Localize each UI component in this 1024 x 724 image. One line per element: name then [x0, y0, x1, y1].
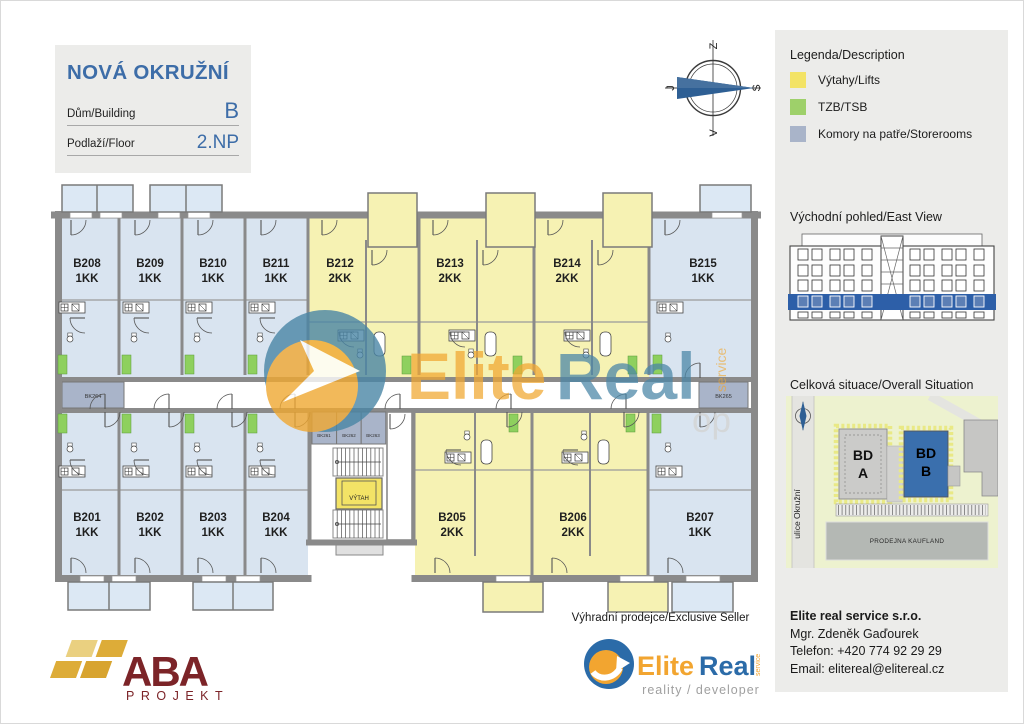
east-view-title: Východní pohled/East View	[790, 210, 942, 224]
unit-b203-code: B203	[199, 512, 227, 524]
storeroom-bk261-label: BK261	[317, 433, 331, 438]
unit-b201-room	[55, 411, 119, 578]
unit-b214-code: B214	[553, 258, 581, 270]
unit-b205-type: 2KK	[440, 527, 464, 539]
storeroom-bk263-label: BK263	[366, 433, 380, 438]
unit-b211-type: 1KK	[264, 273, 288, 285]
aba-sub: PROJEKT	[126, 689, 223, 703]
elitereal-text-service: service	[755, 654, 762, 676]
unit-b213-type: 2KK	[438, 273, 462, 285]
unit-b204-type: 1KK	[264, 527, 288, 539]
unit-b210-code: B210	[199, 258, 227, 270]
situation-map: ulice Okružní BD A BD B PRODEJNA KAUFLAN…	[786, 396, 998, 568]
storeroom-bk262-label: BK262	[342, 433, 356, 438]
elitereal-tagline: reality / developer	[642, 683, 760, 697]
unit-b204-room	[245, 411, 308, 578]
unit-b208-code: B208	[73, 258, 101, 270]
legend-title: Legenda/Description	[790, 48, 905, 62]
lift-label: VÝTAH	[349, 495, 369, 502]
unit-b205-code: B205	[438, 512, 466, 524]
elitereal-text-elite: Elite	[637, 651, 694, 681]
parking-strip	[836, 504, 988, 516]
aba-projekt-logo: ABA PROJEKT	[38, 634, 223, 704]
unit-b209-code: B209	[136, 258, 164, 270]
staircase-upper	[333, 448, 383, 476]
unit-b205-room	[415, 411, 532, 578]
unit-b210-type: 1KK	[201, 273, 225, 285]
building-a-line2: A	[858, 465, 868, 481]
legend-item-lifts: Výtahy/Lifts	[790, 72, 880, 88]
seller-phone: Telefon: +420 774 92 29 29	[790, 643, 1000, 661]
unit-b207-code: B207	[686, 512, 714, 524]
page: { "title_block": { "project": "NOVÁ OKRU…	[0, 0, 1024, 724]
info-panel: Legenda/Description Výtahy/Lifts TZB/TSB…	[775, 30, 1008, 692]
unit-b202-type: 1KK	[138, 527, 162, 539]
lifts-swatch	[790, 72, 806, 88]
unit-b203-room	[182, 411, 245, 578]
seller-email: Email: elitereal@elitereal.cz	[790, 661, 1000, 679]
building-b-line1: BD	[916, 445, 936, 461]
unit-b210-room	[182, 215, 245, 378]
unit-b201-code: B201	[73, 512, 101, 524]
elitereal-logo: Elite Real service reality / developer	[553, 630, 765, 702]
legend-item-storerooms: Komory na patře/Storerooms	[790, 126, 972, 142]
core-vestibule	[387, 412, 412, 540]
unit-b202-code: B202	[136, 512, 164, 524]
unit-b206-code: B206	[559, 512, 587, 524]
unit-b212-code: B212	[326, 258, 354, 270]
building-b-line2: B	[921, 463, 931, 479]
watermark-elite: Elite	[407, 339, 546, 413]
unit-b215-code: B215	[689, 258, 717, 270]
unit-b208-type: 1KK	[75, 273, 99, 285]
unit-b211-code: B211	[263, 258, 290, 270]
unit-b202-room	[119, 411, 182, 578]
building-a-line1: BD	[853, 447, 873, 463]
unit-b213-code: B213	[436, 258, 464, 270]
elitereal-text-real: Real	[699, 651, 756, 681]
unit-b204-code: B204	[262, 512, 290, 524]
unit-b209-room	[119, 215, 182, 378]
staircase-lower	[333, 510, 383, 538]
watermark-service: service	[713, 347, 729, 392]
tzb-swatch	[790, 99, 806, 115]
situation-title: Celková situace/Overall Situation	[790, 378, 973, 392]
unit-b209-type: 1KK	[138, 273, 162, 285]
unit-b207-type: 1KK	[688, 527, 712, 539]
legend-item-tzb: TZB/TSB	[790, 99, 867, 115]
tzb-label: TZB/TSB	[818, 100, 867, 114]
unit-b208-room	[55, 215, 119, 378]
entrance-landing	[336, 545, 383, 555]
unit-b214-type: 2KK	[555, 273, 579, 285]
storerooms-label: Komory na patře/Storerooms	[818, 127, 972, 141]
watermark-real: Real	[556, 339, 695, 413]
seller-company: Elite real service s.r.o.	[790, 608, 1000, 626]
aba-name: ABA	[122, 648, 209, 695]
exclusive-seller-heading: Výhradní prodejce/Exclusive Seller	[558, 612, 763, 624]
unit-b212-type: 2KK	[328, 273, 352, 285]
seller-contact-block: Elite real service s.r.o. Mgr. Zdeněk Ga…	[790, 608, 1000, 678]
unit-b201-type: 1KK	[75, 527, 99, 539]
unit-b203-type: 1KK	[201, 527, 225, 539]
street-label: ulice Okružní	[792, 489, 802, 539]
building-a	[839, 429, 887, 499]
unit-b215-type: 1KK	[691, 273, 715, 285]
aba-tiles	[50, 640, 128, 678]
lifts-label: Výtahy/Lifts	[818, 73, 880, 87]
unit-b206-type: 2KK	[561, 527, 585, 539]
east-view-drawing	[788, 228, 996, 332]
kaufland-label: PRODEJNA KAUFLAND	[870, 538, 945, 545]
lift-shaft	[336, 478, 382, 509]
storerooms-swatch	[790, 126, 806, 142]
watermark-fragment: op	[692, 401, 731, 440]
seller-contact: Mgr. Zdeněk Gaďourek	[790, 626, 1000, 644]
storeroom-bk265-label: BK265	[715, 394, 732, 400]
